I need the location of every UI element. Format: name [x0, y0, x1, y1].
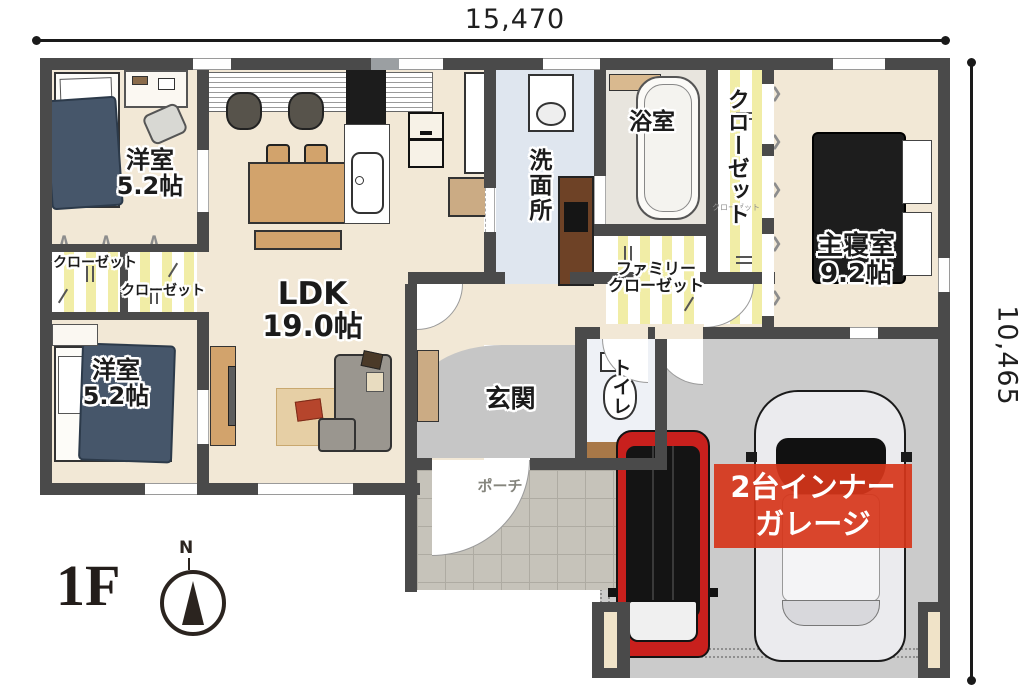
wall-entrance-south	[405, 458, 432, 470]
compass-needle	[182, 581, 204, 625]
bath-door	[594, 176, 606, 224]
dimension-right-line	[970, 62, 973, 682]
label-bathroom: 浴室	[602, 110, 702, 135]
compass-tick	[188, 558, 190, 570]
dining-bench	[254, 230, 342, 250]
wall-toilet-right	[655, 339, 667, 470]
desk-item	[132, 76, 148, 85]
window	[850, 327, 878, 339]
dimension-dot	[32, 36, 41, 45]
wall-bedroom2-ldk	[197, 320, 209, 390]
cabinet	[448, 177, 487, 217]
bed-pillow	[902, 140, 932, 204]
label-ldk: LDK 19.0帖	[240, 278, 385, 343]
stool	[226, 92, 262, 130]
label-closet-b: クローゼット	[108, 284, 218, 299]
garage-banner-line2: ガレージ	[755, 506, 870, 543]
stove	[346, 68, 386, 124]
wall-familycloset-walkin	[706, 70, 718, 284]
room-name: クローゼット	[594, 277, 718, 294]
wall-entrance-south	[530, 458, 587, 470]
hanger-mark	[736, 256, 752, 258]
window	[193, 58, 231, 70]
sofa-ottoman	[318, 418, 356, 452]
label-bedroom1: 洋室 5.2帖	[92, 148, 208, 200]
room-name: 洋室	[92, 148, 208, 174]
car-mirror	[901, 452, 912, 462]
wall-bedroom2-ldk	[197, 444, 209, 483]
label-master-bedroom: 主寝室 9.2帖	[786, 232, 926, 288]
wall-closet-top	[40, 244, 209, 252]
dimension-dot	[967, 676, 976, 685]
compass-icon	[160, 570, 226, 636]
wall-exterior-left	[40, 58, 52, 495]
hanger-mark	[736, 262, 752, 264]
label-entrance: 玄関	[458, 385, 563, 412]
label-porch: ポーチ	[452, 478, 548, 494]
pocket-door	[485, 188, 495, 232]
floor-label: 1F	[56, 552, 120, 619]
wall-master-south	[703, 327, 850, 339]
vanity-sink	[564, 202, 588, 232]
window	[543, 58, 600, 70]
car-mirror	[608, 588, 618, 597]
dimension-dot	[941, 36, 950, 45]
label-closet-a: クローゼット	[40, 256, 150, 271]
car-mirror	[708, 588, 718, 597]
refrigerator-handle	[420, 131, 432, 135]
desk-item	[158, 78, 175, 90]
tall-cabinet	[464, 72, 486, 174]
window	[258, 483, 353, 495]
room-size: 5.2帖	[58, 384, 174, 410]
window	[833, 58, 885, 70]
label-bedroom2: 洋室 5.2帖	[58, 358, 174, 410]
dimension-top: 15,470	[390, 4, 640, 35]
wall-hall-south	[648, 327, 655, 339]
wall-hall-north	[408, 272, 505, 284]
bathtub-inner	[644, 84, 692, 212]
stool	[288, 92, 324, 130]
tv	[228, 366, 236, 426]
shoe-cabinet	[417, 350, 439, 422]
wall-exterior-bottom	[40, 483, 420, 495]
window	[938, 258, 950, 292]
car-mirror	[746, 452, 757, 462]
washer-drum	[536, 102, 566, 126]
floor-plan: 15,470 10,465	[0, 0, 1024, 698]
wall-bath-familycloset	[594, 224, 718, 236]
sink-faucet	[355, 176, 364, 185]
sliding-door	[197, 390, 209, 444]
label-toilet: トイレ	[610, 358, 631, 415]
vent-box	[371, 58, 399, 70]
room-name: 洋室	[58, 358, 174, 384]
garage-banner: 2台インナー ガレージ	[714, 464, 912, 548]
room-name: LDK	[240, 278, 385, 311]
room-size: 9.2帖	[786, 260, 926, 288]
garage-banner-line1: 2台インナー	[730, 469, 895, 506]
garage-pillar	[604, 612, 617, 668]
window	[399, 58, 443, 70]
wall-bedroom1-ldk	[197, 70, 209, 150]
dimension-right: 10,465	[992, 296, 1023, 416]
label-washroom: 洗面所	[525, 148, 550, 223]
wall-closet-bottom	[40, 312, 209, 320]
wall-ldk-washroom	[484, 70, 496, 188]
wall-hall-south	[575, 327, 600, 339]
compass-north-label: N	[179, 538, 193, 558]
garage-pillar	[928, 612, 940, 668]
dimension-top-line	[36, 39, 948, 42]
refrigerator-divider	[408, 138, 444, 141]
wall-master-south	[878, 327, 938, 339]
wall-toilet-left	[575, 339, 587, 470]
desk	[52, 324, 98, 346]
wall-toilet-south	[575, 458, 667, 470]
room-name: ファミリー	[594, 260, 718, 277]
wall-entrance-west	[405, 284, 417, 592]
room-size: 19.0帖	[240, 311, 385, 342]
label-family-closet: ファミリー クローゼット	[594, 260, 718, 295]
room-size: 5.2帖	[92, 174, 208, 200]
car-minivan-roof	[626, 446, 700, 618]
room-name: 主寝室	[786, 232, 926, 260]
closet-door-gap	[762, 234, 774, 316]
wall-exterior-top	[40, 58, 950, 70]
dimension-dot	[967, 58, 976, 67]
window	[145, 483, 197, 495]
car-minivan-windshield	[628, 600, 698, 642]
closet-door-gap	[762, 84, 774, 144]
dining-table	[248, 162, 346, 224]
label-walkin-closet: クローゼット	[724, 88, 748, 226]
car-sedan-rear-window	[782, 600, 880, 626]
sofa-pillow	[366, 372, 384, 392]
wall-exterior-right	[938, 58, 950, 678]
